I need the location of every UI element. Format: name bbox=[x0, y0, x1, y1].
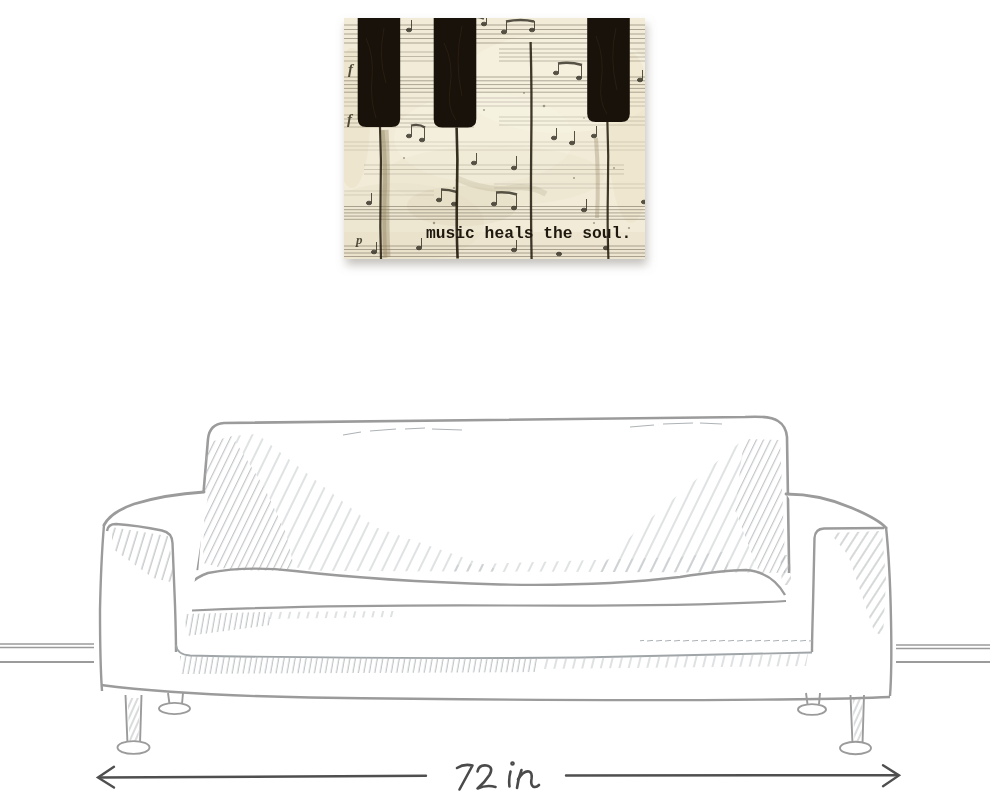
svg-text:music heals the soul.: music heals the soul. bbox=[426, 224, 631, 243]
svg-text:p: p bbox=[355, 232, 363, 247]
